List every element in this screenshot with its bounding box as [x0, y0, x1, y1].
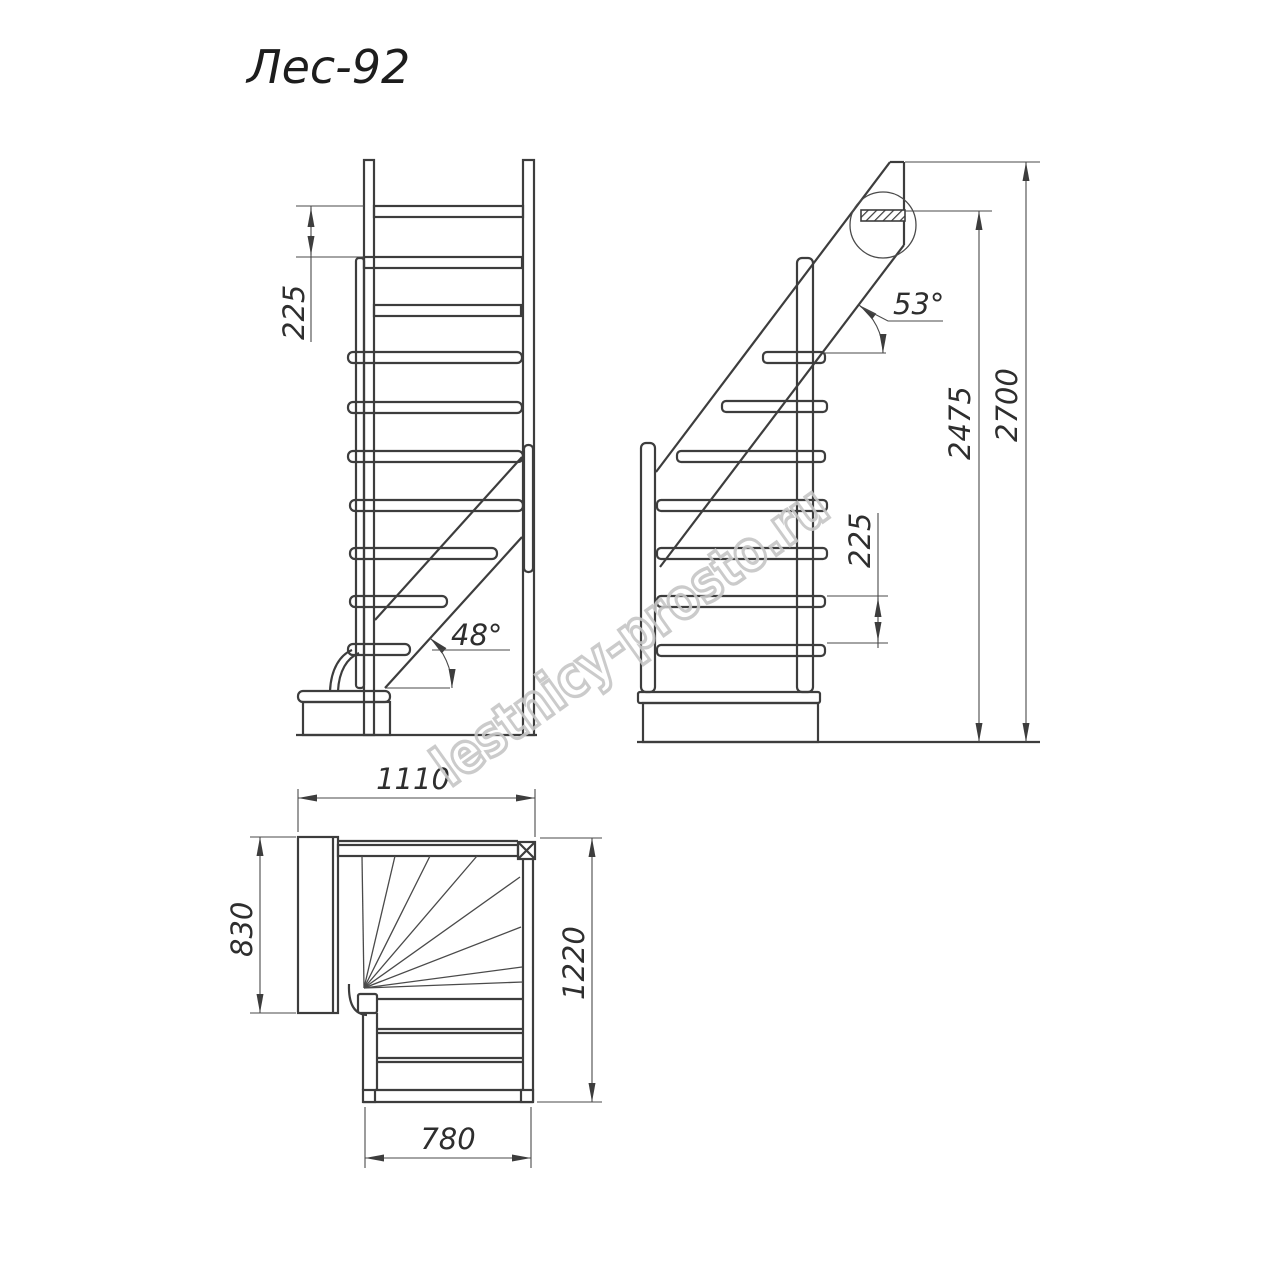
plan-view [298, 837, 535, 1102]
front-handrail-bar [524, 445, 533, 572]
angle-label-front: 48° [451, 618, 502, 652]
dim-label-side-step-rise: 225 [843, 513, 877, 568]
dim-label-flight-width: 780 [420, 1122, 475, 1156]
dim-plan-flight-width: 780 [365, 1107, 531, 1168]
angle-label-side: 53° [893, 287, 944, 321]
dim-plan-overall-width: 1110 [298, 762, 535, 837]
plan-landing [298, 837, 338, 1013]
dim-label-height-to-top-step: 2475 [943, 386, 977, 460]
drawing-title: Лес-92 [245, 40, 410, 94]
top-step-section [861, 210, 905, 221]
plan-winder-treads [349, 856, 523, 1015]
top-step-detail [850, 192, 916, 258]
dim-label-front-step-rise: 225 [277, 285, 311, 340]
dim-side-step-rise: 225 [827, 513, 888, 648]
plan-entry-post-left [363, 1090, 375, 1102]
dim-label-total-height: 2700 [990, 368, 1024, 442]
front-posts [330, 160, 534, 735]
dim-side-angle: 53° [823, 287, 944, 353]
drawing-page: 225 48° 53° 225 2475 [0, 0, 1280, 1280]
dim-label-landing-depth: 830 [225, 902, 259, 957]
plan-center-newel [358, 994, 377, 1013]
staircase-technical-drawing: 225 48° 53° 225 2475 [0, 0, 1280, 1280]
dim-plan-landing-depth: 830 [225, 837, 296, 1013]
plan-lower-flight [363, 999, 533, 1102]
dim-front-step-rise: 225 [277, 206, 364, 342]
dim-front-angle: 48° [385, 618, 510, 688]
dim-label-overall-depth: 1220 [557, 926, 591, 1000]
front-stringer [375, 457, 522, 688]
detail-circle [850, 192, 916, 258]
plan-entry-post-right [521, 1090, 533, 1102]
dim-plan-overall-depth: 1220 [537, 838, 602, 1102]
